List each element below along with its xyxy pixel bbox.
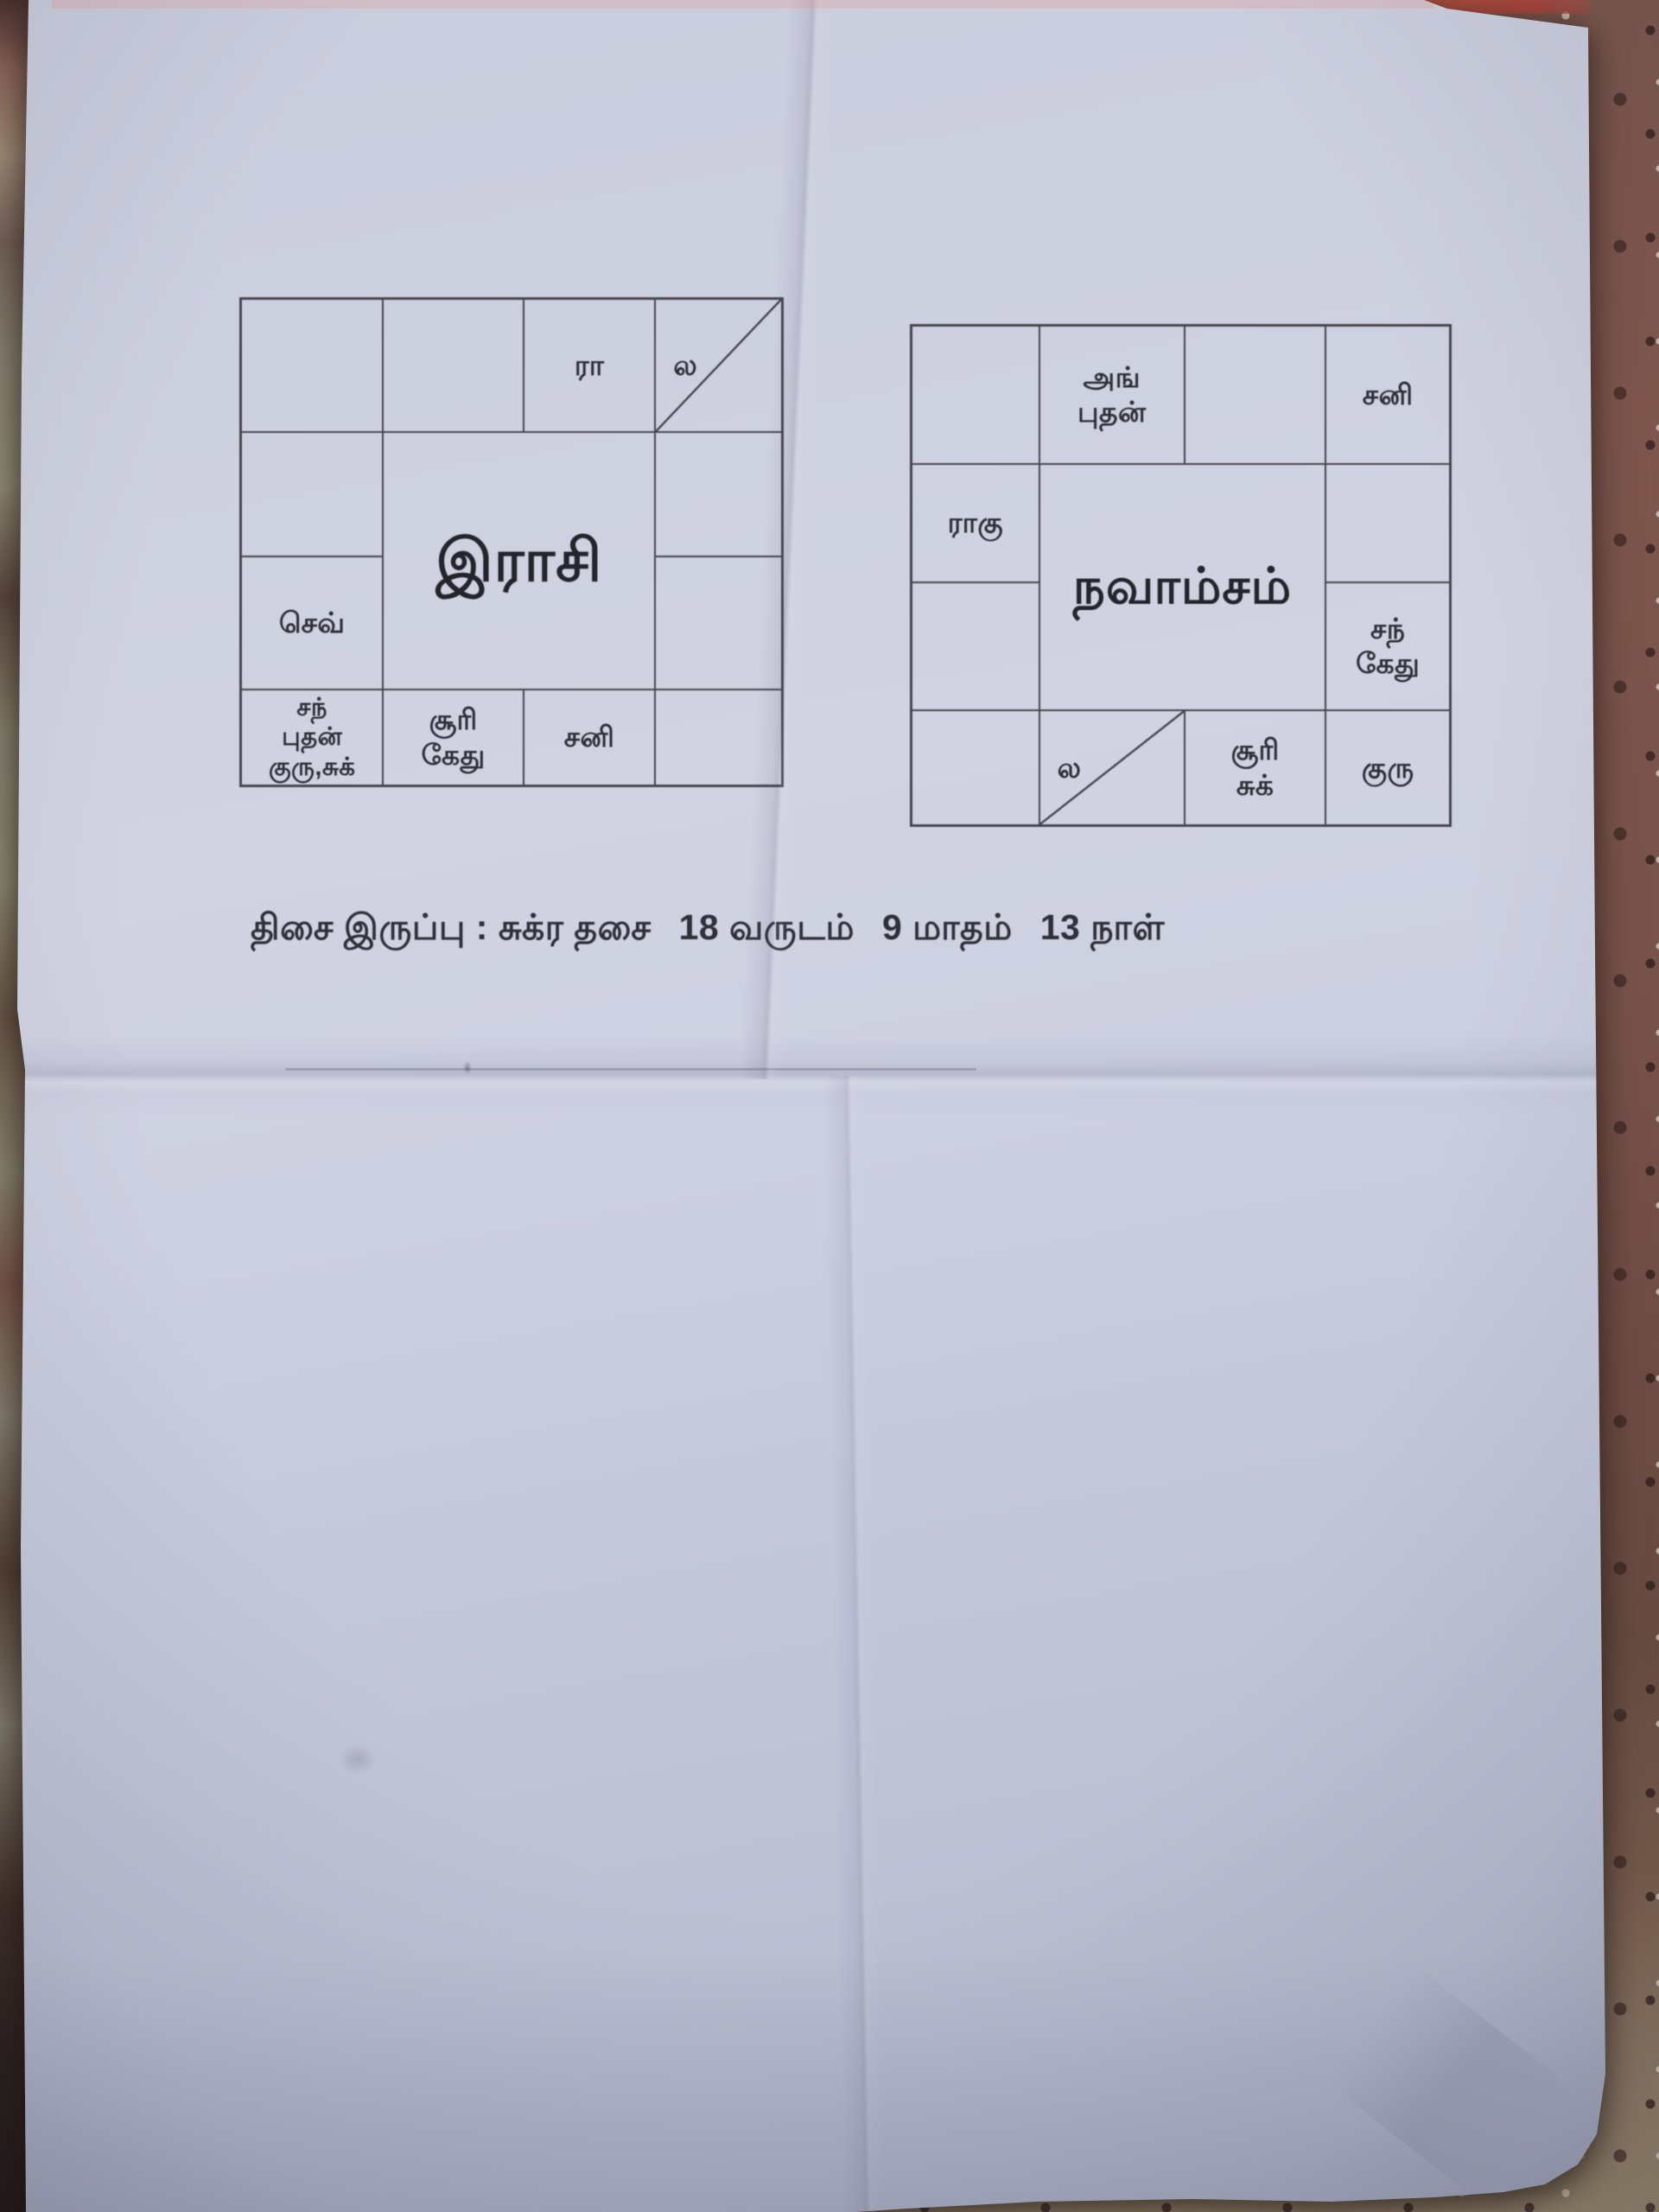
navamsam-chart: அங் புதன் சனி ராகு நவாம்சம் சந் கேது ல ச… xyxy=(910,324,1452,827)
printed-content: ரா ல இராசி செவ் சந் புதன் குரு,சுக் சூரி… xyxy=(0,0,1659,2212)
rasi-cell-r2c1 xyxy=(242,433,384,556)
rasi-cell-r2c4 xyxy=(656,433,781,556)
dasa-months: 9 மாதம் xyxy=(882,907,1013,953)
navamsam-cell-angaarakan-budhan: அங் புதன் xyxy=(1040,327,1185,465)
dasa-label: திசை இருப்பு : சுக்ர தசை xyxy=(251,907,652,953)
navamsam-cell-r1c3 xyxy=(1185,327,1326,465)
dasa-years: 18 வருடம் xyxy=(679,907,855,953)
paper-sheet: ரா ல இராசி செவ் சந் புதன் குரு,சுக் சூரி… xyxy=(0,0,1659,2212)
paper-shadow: ரா ல இராசி செவ் சந் புதன் குரு,சுக் சூரி… xyxy=(0,0,1659,2212)
rasi-cell-r4c4 xyxy=(656,690,781,785)
rasi-cell-r1c1 xyxy=(242,300,384,433)
navamsam-cell-r3c1 xyxy=(912,583,1040,711)
rasi-cell-chandran-budhan-guru-sukran: சந் புதன் குரு,சுக் xyxy=(242,690,384,785)
navamsam-cell-chandran-kethu: சந் கேது xyxy=(1326,583,1449,711)
navamsam-cell-r4c1 xyxy=(912,711,1040,824)
navamsam-cell-sooriyan-sukran: சூரி சுக் xyxy=(1185,711,1326,824)
rasi-title: இராசி xyxy=(435,525,602,597)
navamsam-center: நவாம்சம் xyxy=(1040,465,1327,711)
rasi-center: இராசி xyxy=(384,433,656,690)
rasi-cell-r3c4 xyxy=(656,557,781,690)
rasi-cell-sani: சனி xyxy=(524,690,657,785)
rasi-cell-sevvai: செவ் xyxy=(242,557,384,690)
rasi-cell-lagna: ல xyxy=(656,300,781,433)
lagna-diagonal-line xyxy=(656,300,781,431)
dasa-days: 13 நாள் xyxy=(1040,907,1165,953)
navamsam-cell-guru: குரு xyxy=(1326,711,1449,824)
dasa-summary-line: திசை இருப்பு : சுக்ர தசை 18 வருடம் 9 மாத… xyxy=(251,907,1165,953)
navamsam-title: நவாம்சம் xyxy=(1073,556,1292,618)
rasi-chart: ரா ல இராசி செவ் சந் புதன் குரு,சுக் சூரி… xyxy=(239,297,784,787)
photo-of-horoscope-sheet: { "charts": [ { "title": "இராசி", "cells… xyxy=(0,0,1659,2212)
navamsam-cell-raagu: ராகு xyxy=(912,465,1040,583)
rasi-cell-r1c2 xyxy=(384,300,524,433)
lagna-diagonal-line xyxy=(1040,711,1184,824)
navamsam-cell-sani: சனி xyxy=(1326,327,1449,465)
rasi-cell-sooriyan-kethu: சூரி கேது xyxy=(384,690,524,785)
navamsam-cell-lagna: ல xyxy=(1040,711,1185,824)
rasi-cell-raagu: ரா xyxy=(524,300,657,433)
navamsam-cell-r2c4 xyxy=(1326,465,1449,583)
navamsam-cell-r1c1 xyxy=(912,327,1040,465)
